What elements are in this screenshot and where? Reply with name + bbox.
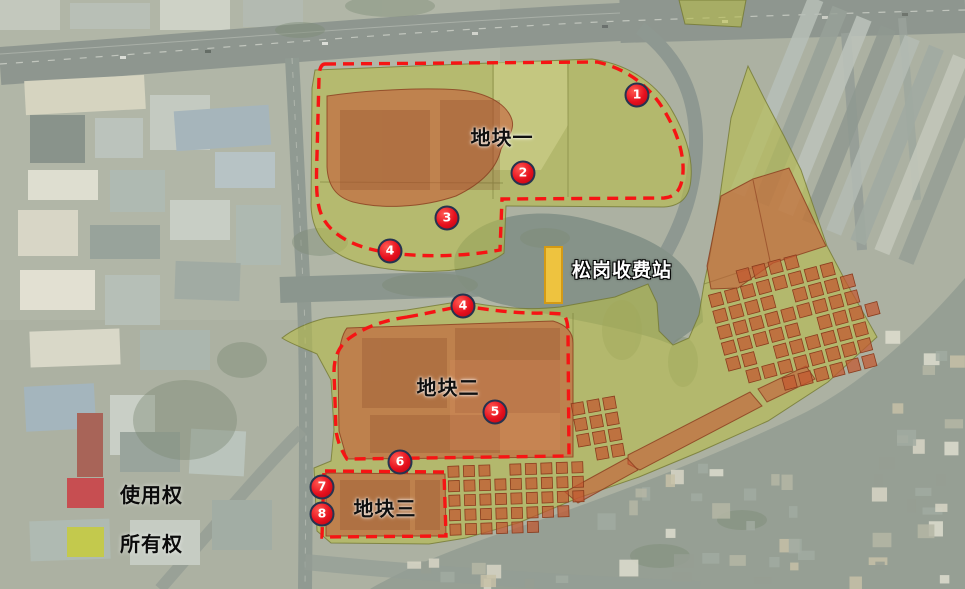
toll-station-rect — [545, 247, 562, 303]
legend-item-usage: 使用权 — [67, 478, 183, 508]
ownership-swatch — [67, 527, 104, 557]
light-roof — [450, 360, 560, 450]
ownership-label: 所有权 — [120, 528, 183, 557]
usage-right-label: 使用权 — [120, 479, 183, 508]
ownership-top-patch — [679, 0, 746, 27]
usage-right-swatch — [67, 478, 104, 508]
legend-item-ownership: 所有权 — [67, 527, 183, 557]
map-canvas: 地块一地块二地块三松岗收费站123445678 使用权 所有权 — [0, 0, 965, 589]
